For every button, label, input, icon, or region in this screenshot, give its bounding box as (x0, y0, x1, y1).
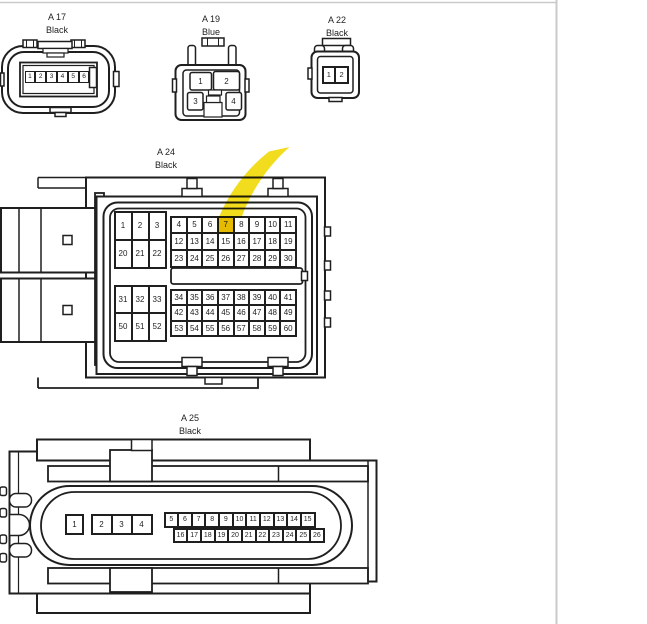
pin-cell-23: 23 (269, 529, 283, 542)
a17-label: A 17 Black (17, 11, 97, 37)
pin-cell-4: 4 (132, 515, 152, 534)
pin-cell-22: 22 (256, 529, 270, 542)
pin-cell-57: 57 (234, 321, 250, 337)
pin-cell-49: 49 (280, 305, 296, 321)
pin-cell-2: 2 (335, 67, 348, 83)
pin-cell-28: 28 (249, 250, 265, 267)
pin-cell-42: 42 (171, 305, 187, 321)
pin-cell-21: 21 (132, 240, 149, 268)
pin-cell-30: 30 (280, 250, 296, 267)
pin-cell-8: 8 (234, 217, 250, 234)
pin-cell-19: 19 (280, 233, 296, 250)
pin-cell-48: 48 (265, 305, 281, 321)
pin-cell-56: 56 (218, 321, 234, 337)
pin-cell-11: 11 (280, 217, 296, 234)
pin-cell-59: 59 (265, 321, 281, 337)
pin-cell-26: 26 (310, 529, 324, 542)
pin-cell-1: 1 (323, 67, 336, 83)
pin-cell-2: 2 (132, 212, 149, 240)
a25-id: A 25 (150, 412, 230, 425)
a24-label: A 24 Black (126, 146, 206, 172)
pin-cell-6: 6 (79, 71, 90, 83)
pin-cell-44: 44 (202, 305, 218, 321)
connector-diagram-page: A 17 Black A 19 Blue A 22 Black A 24 Bla… (0, 0, 647, 624)
pin-cell-41: 41 (280, 290, 296, 306)
pin-cell-5: 5 (68, 71, 79, 83)
pin-cell-17: 17 (249, 233, 265, 250)
pin-cell-20: 20 (115, 240, 132, 268)
pin-cell-6: 6 (178, 513, 192, 527)
pin-cell-45: 45 (218, 305, 234, 321)
pin-cell-3: 3 (149, 212, 166, 240)
pin-cell-1: 1 (66, 515, 83, 534)
pin-cell-29: 29 (265, 250, 281, 267)
a22-color: Black (297, 27, 377, 40)
a19-connector-outline (173, 38, 250, 120)
pin-cell-53: 53 (171, 321, 187, 337)
a25-pins-2-4: 234 (91, 514, 153, 535)
pin-cell-10: 10 (265, 217, 281, 234)
pin-cell-54: 54 (187, 321, 203, 337)
pin-cell-4: 4 (171, 217, 187, 234)
a24-connector-outline (1, 178, 331, 389)
pin-cell-21: 21 (242, 529, 256, 542)
pin-cell-9: 9 (249, 217, 265, 234)
pin-cell-1: 1 (115, 212, 132, 240)
a19-pin-1: 1 (194, 77, 208, 86)
pin-cell-14: 14 (202, 233, 218, 250)
pin-cell-46: 46 (234, 305, 250, 321)
a25-pin-row-top: 56789101112131415 (164, 512, 316, 528)
pin-cell-18: 18 (265, 233, 281, 250)
pin-cell-33: 33 (149, 286, 166, 314)
a19-pin-4: 4 (227, 97, 241, 106)
pin-cell-24: 24 (283, 529, 297, 542)
pin-cell-60: 60 (280, 321, 296, 337)
pin-cell-35: 35 (187, 290, 203, 306)
pin-cell-37: 37 (218, 290, 234, 306)
pin-cell-22: 22 (149, 240, 166, 268)
pin-cell-2: 2 (92, 515, 112, 534)
pin-cell-27: 27 (234, 250, 250, 267)
pin-cell-36: 36 (202, 290, 218, 306)
pin-cell-3: 3 (46, 71, 57, 83)
pin-cell-5: 5 (165, 513, 179, 527)
pin-cell-55: 55 (202, 321, 218, 337)
pin-cell-7: 7 (218, 217, 234, 234)
pin-cell-15: 15 (218, 233, 234, 250)
pin-cell-16: 16 (174, 529, 188, 542)
pin-cell-12: 12 (171, 233, 187, 250)
pin-cell-13: 13 (274, 513, 288, 527)
a19-pin-2: 2 (220, 77, 234, 86)
pin-cell-2: 2 (35, 71, 46, 83)
pin-cell-17: 17 (187, 529, 201, 542)
pin-cell-8: 8 (205, 513, 219, 527)
pin-cell-19: 19 (215, 529, 229, 542)
pin-cell-34: 34 (171, 290, 187, 306)
pin-cell-20: 20 (228, 529, 242, 542)
pin-cell-4: 4 (57, 71, 68, 83)
pin-cell-40: 40 (265, 290, 281, 306)
a22-pin-row: 12 (322, 66, 350, 84)
pin-cell-18: 18 (201, 529, 215, 542)
a22-id: A 22 (297, 14, 377, 27)
pin-cell-39: 39 (249, 290, 265, 306)
pin-cell-51: 51 (132, 313, 149, 341)
a19-label: A 19 Blue (171, 13, 251, 39)
pin-cell-43: 43 (187, 305, 203, 321)
a19-color: Blue (171, 26, 251, 39)
a24-pin-grid-bottom-right: 3435363738394041424344454647484953545556… (170, 289, 297, 338)
pin-cell-1: 1 (25, 71, 36, 83)
pin-cell-32: 32 (132, 286, 149, 314)
pin-cell-13: 13 (187, 233, 203, 250)
pin-cell-16: 16 (234, 233, 250, 250)
a24-pin-grid-top-right: 4567891011121314151617181923242526272829… (170, 216, 297, 269)
a25-pin-1: 1 (65, 514, 84, 535)
a17-color: Black (17, 24, 97, 37)
pin-cell-12: 12 (260, 513, 274, 527)
pin-cell-38: 38 (234, 290, 250, 306)
pin-cell-7: 7 (192, 513, 206, 527)
pin-cell-23: 23 (171, 250, 187, 267)
pin-cell-6: 6 (202, 217, 218, 234)
a19-id: A 19 (171, 13, 251, 26)
pin-cell-14: 14 (287, 513, 301, 527)
pin-cell-58: 58 (249, 321, 265, 337)
a25-pin-row-bottom: 1617181920212223242526 (173, 528, 325, 543)
pin-cell-47: 47 (249, 305, 265, 321)
pin-cell-11: 11 (246, 513, 260, 527)
pin-cell-26: 26 (218, 250, 234, 267)
pin-cell-25: 25 (202, 250, 218, 267)
pin-cell-52: 52 (149, 313, 166, 341)
pin-cell-5: 5 (187, 217, 203, 234)
a24-pin-grid-top-left: 123202122 (114, 211, 167, 269)
a17-pin-row: 123456 (25, 71, 90, 83)
pin-cell-3: 3 (112, 515, 132, 534)
pin-cell-25: 25 (296, 529, 310, 542)
a25-label: A 25 Black (150, 412, 230, 438)
a24-color: Black (126, 159, 206, 172)
a24-id: A 24 (126, 146, 206, 159)
pin-cell-9: 9 (219, 513, 233, 527)
pin-cell-24: 24 (187, 250, 203, 267)
pin-cell-15: 15 (301, 513, 315, 527)
a24-pin-grid-bottom-left: 313233505152 (114, 285, 167, 342)
pin-cell-50: 50 (115, 313, 132, 341)
a25-color: Black (150, 425, 230, 438)
a17-id: A 17 (17, 11, 97, 24)
a19-pin-3: 3 (189, 97, 203, 106)
a22-label: A 22 Black (297, 14, 377, 40)
pin-cell-10: 10 (233, 513, 247, 527)
pin-cell-31: 31 (115, 286, 132, 314)
